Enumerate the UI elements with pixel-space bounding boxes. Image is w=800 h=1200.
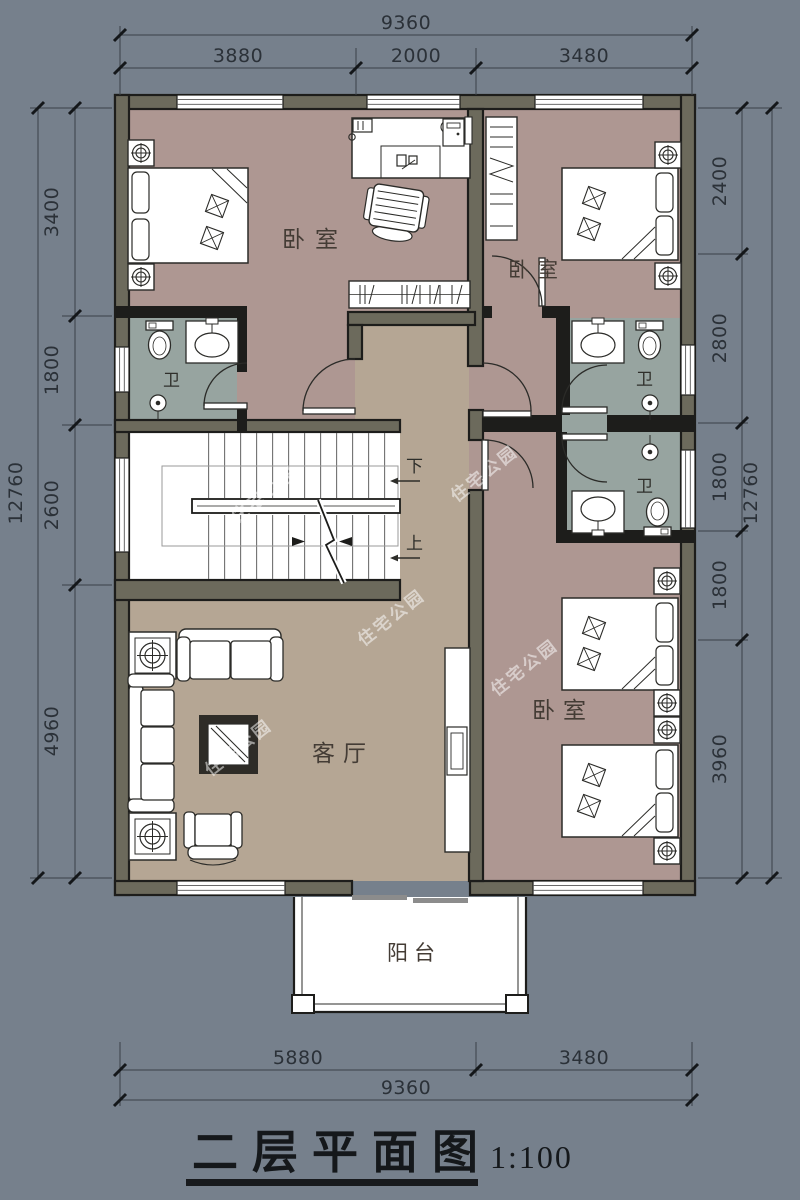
wall-bath1-right-stub <box>237 406 247 432</box>
hall-floor-upper <box>355 325 469 420</box>
hall-floor-lower <box>400 420 469 600</box>
balcony-label: 阳台 <box>387 941 441 965</box>
stair-down-label: 下 <box>406 457 423 477</box>
nightstand-icon <box>654 690 680 716</box>
toilet-icon <box>644 498 671 536</box>
title-text: 二层平面图 <box>192 1127 492 1178</box>
dim-right-seg4: 1800 <box>709 560 731 610</box>
wall-stair-bottom <box>115 580 400 600</box>
window-top-2 <box>367 95 460 109</box>
title-underline <box>186 1179 478 1186</box>
window-left-stair <box>115 458 129 552</box>
dim-left-total: 12760 <box>5 462 27 525</box>
wall-stair-top <box>115 420 400 432</box>
door-opening-bath1 <box>237 372 247 406</box>
bookshelf-icon <box>349 281 470 308</box>
window-top-1 <box>177 95 283 109</box>
dim-bottom-seg2: 3480 <box>559 1047 609 1069</box>
wall-bath1-top <box>115 306 247 318</box>
dim-right-total: 12760 <box>740 462 762 525</box>
tv-cabinet-icon <box>445 648 470 852</box>
dim-right-seg1: 2400 <box>709 156 731 206</box>
dim-right-seg2: 2800 <box>709 313 731 363</box>
wall-stub-a <box>348 325 362 359</box>
side-table-icon <box>129 813 176 860</box>
living-room-label: 客厅 <box>312 741 374 767</box>
floor-plan-page: 下 上 <box>0 0 800 1200</box>
bedroom-top-right-label: 卧室 <box>508 258 566 282</box>
window-bottom-bedroom3 <box>533 881 643 895</box>
door-opening-hall <box>469 366 483 412</box>
window-bottom-living <box>177 881 285 895</box>
window-left-bath <box>115 347 129 392</box>
corridor-strip-floor <box>483 318 556 415</box>
dim-left-seg1: 3400 <box>41 187 63 237</box>
wall-hall-right-b <box>469 490 483 881</box>
sink-icon <box>572 491 624 536</box>
two-seat-sofa-icon <box>177 629 283 681</box>
wall-hall-right-a <box>469 410 483 440</box>
bedroom-top-left-label: 卧室 <box>282 227 348 253</box>
window-right-bath2 <box>681 345 695 395</box>
floor-plan-drawing: 下 上 <box>0 0 800 1200</box>
double-bed-icon <box>562 168 678 260</box>
title-scale: 1:100 <box>490 1139 573 1175</box>
dim-left-seg3: 2600 <box>41 480 63 530</box>
toilet-icon <box>146 321 173 359</box>
dim-right-seg5: 3960 <box>709 734 731 784</box>
nightstand-icon <box>128 264 154 290</box>
wall-bath3-left <box>556 432 567 530</box>
dim-left-seg4: 4960 <box>41 706 63 756</box>
nightstand-icon <box>655 263 681 289</box>
dim-top-seg2: 2000 <box>391 45 441 67</box>
dim-bottom-seg1: 5880 <box>273 1047 323 1069</box>
dim-bottom-total: 9360 <box>381 1077 431 1099</box>
dim-right-seg3: 1800 <box>709 452 731 502</box>
bathroom-right-top-label: 卫 <box>636 370 654 390</box>
window-top-3 <box>535 95 643 109</box>
sink-icon <box>572 318 624 363</box>
armchair-icon <box>184 812 242 865</box>
window-right-bath3 <box>681 450 695 528</box>
stair-up-label: 上 <box>406 534 423 554</box>
nightstand-icon <box>654 717 680 743</box>
three-seat-sofa-icon <box>128 674 174 812</box>
wall-bedroom2-bottom-a <box>482 306 492 318</box>
bathroom-right-middle-label: 卫 <box>636 477 654 497</box>
dim-top-seg3: 3480 <box>559 45 609 67</box>
wall-hall-top <box>348 312 475 325</box>
nightstand-icon <box>654 568 680 594</box>
bathroom-left-label: 卫 <box>163 371 181 391</box>
nightstand-icon <box>655 142 681 168</box>
staircase: 下 上 <box>162 433 423 583</box>
bed-icon <box>562 598 678 690</box>
sliding-door-panel-2 <box>413 898 468 903</box>
dim-left-seg2: 1800 <box>41 345 63 395</box>
side-table-icon <box>129 632 176 679</box>
dim-top-seg1: 3880 <box>213 45 263 67</box>
nightstand-icon <box>654 838 680 864</box>
sink-icon <box>186 318 238 363</box>
sliding-door-panel-1 <box>352 895 407 900</box>
bedroom-bottom-right-label: 卧室 <box>532 698 594 724</box>
bed-icon <box>562 745 678 837</box>
double-bed-icon <box>128 168 248 263</box>
drawing-title: 二层平面图 1:100 <box>186 1127 573 1186</box>
wall-bath3-top-right <box>607 415 695 432</box>
desk-icon <box>349 117 472 178</box>
bathroom-door-gap <box>562 415 607 432</box>
wardrobe-icon <box>486 117 517 240</box>
dim-top-total: 9360 <box>381 12 431 34</box>
nightstand-icon <box>128 140 154 166</box>
toilet-icon <box>636 321 663 359</box>
